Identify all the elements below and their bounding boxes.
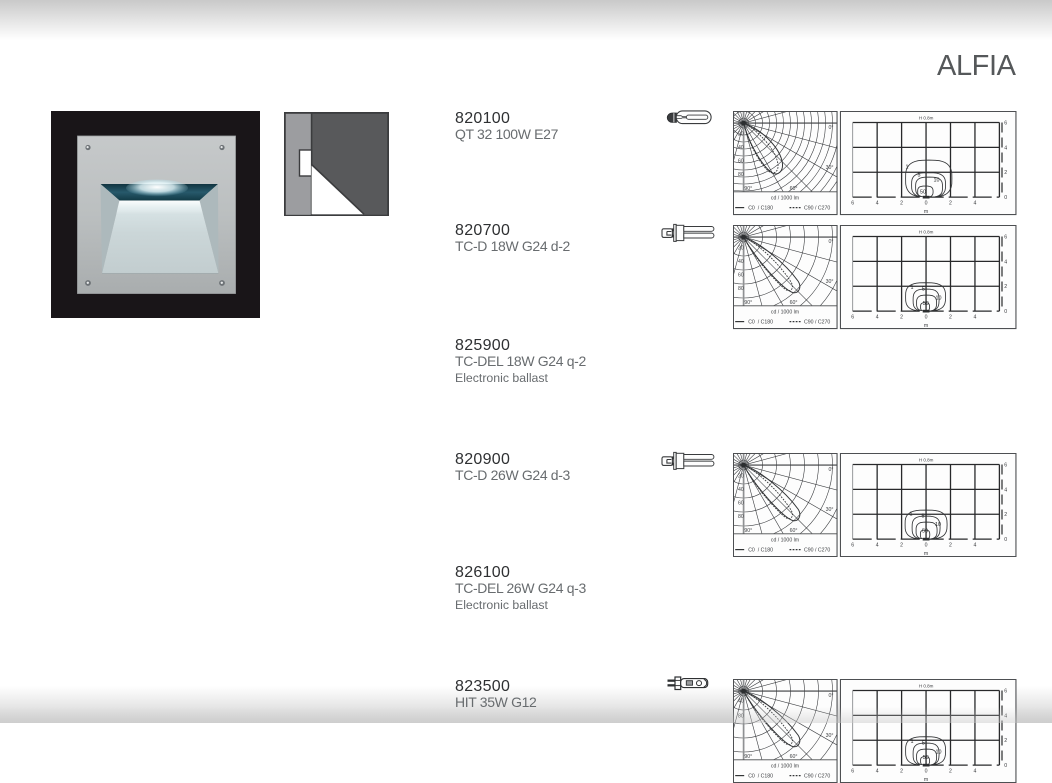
svg-text:2: 2 [900,768,903,774]
svg-text:H 0.8m: H 0.8m [918,457,933,462]
svg-text:0°: 0° [828,466,833,472]
svg-text:C90 / C270: C90 / C270 [804,320,830,326]
svg-text:0: 0 [924,315,927,321]
svg-text:m: m [923,209,927,215]
svg-text:4: 4 [1004,146,1007,152]
svg-text:C0 / C180: C0 / C180 [748,206,773,212]
svg-text:1: 1 [909,511,912,517]
svg-text:80: 80 [738,514,744,520]
svg-text:50: 50 [922,755,928,761]
svg-text:C90 / C270: C90 / C270 [804,547,830,553]
svg-text:1: 1 [910,739,913,745]
svg-text:0: 0 [924,201,927,207]
svg-text:4: 4 [973,315,976,321]
svg-text:4: 4 [875,542,878,548]
svg-text:2: 2 [1004,512,1007,518]
svg-text:C0 / C180: C0 / C180 [748,320,773,326]
svg-text:4: 4 [973,201,976,207]
svg-text:1: 1 [905,165,908,171]
svg-text:50: 50 [922,528,928,534]
svg-text:H 0.8m: H 0.8m [918,116,933,121]
svg-text:4: 4 [875,315,878,321]
svg-text:0°: 0° [828,125,833,131]
svg-text:6: 6 [851,315,854,321]
svg-text:90°: 90° [744,753,752,759]
svg-text:2: 2 [900,201,903,207]
svg-text:20: 20 [738,246,744,252]
svg-text:50: 50 [920,190,926,196]
svg-text:1: 1 [910,285,913,291]
svg-text:6: 6 [1004,462,1007,468]
svg-text:0: 0 [1004,537,1007,543]
svg-text:m: m [923,550,927,556]
svg-text:cd / 1000 lm: cd / 1000 lm [770,763,798,769]
svg-text:4: 4 [973,768,976,774]
svg-text:60: 60 [738,273,744,279]
svg-text:cd / 1000 lm: cd / 1000 lm [770,310,798,316]
svg-text:4: 4 [1004,487,1007,493]
svg-text:6: 6 [851,768,854,774]
svg-text:30°: 30° [825,507,833,513]
svg-text:6: 6 [1004,121,1007,127]
svg-text:m: m [923,776,927,782]
svg-text:60°: 60° [789,186,797,192]
svg-text:2: 2 [900,315,903,321]
svg-text:60: 60 [738,500,744,506]
svg-text:cd / 1000 lm: cd / 1000 lm [770,537,798,543]
svg-text:0: 0 [1004,195,1007,201]
svg-text:2: 2 [1004,284,1007,290]
svg-text:m: m [923,323,927,329]
svg-text:80: 80 [738,172,744,178]
svg-text:2: 2 [949,315,952,321]
svg-text:0: 0 [924,768,927,774]
svg-text:10: 10 [935,522,941,528]
svg-text:90°: 90° [744,300,752,306]
svg-text:2: 2 [1004,170,1007,176]
svg-text:40: 40 [738,698,744,704]
svg-text:C90 / C270: C90 / C270 [804,206,830,212]
svg-text:4: 4 [973,542,976,548]
svg-text:2: 2 [900,542,903,548]
svg-text:6: 6 [1004,688,1007,694]
svg-text:2: 2 [949,542,952,548]
svg-text:5: 5 [921,286,924,292]
svg-text:10: 10 [935,295,941,301]
svg-text:2: 2 [949,768,952,774]
svg-text:4: 4 [875,768,878,774]
svg-text:2: 2 [949,201,952,207]
svg-text:50: 50 [922,301,928,307]
svg-text:40: 40 [738,487,744,493]
svg-text:H 0.8m: H 0.8m [918,683,933,688]
svg-text:C90 / C270: C90 / C270 [804,773,830,779]
svg-text:10: 10 [933,178,939,184]
svg-text:30°: 30° [825,279,833,285]
svg-text:0: 0 [1004,309,1007,315]
svg-text:0°: 0° [828,692,833,698]
svg-text:40: 40 [738,259,744,265]
svg-text:6: 6 [1004,234,1007,240]
svg-text:cd / 1000 lm: cd / 1000 lm [770,196,798,202]
svg-text:2: 2 [1004,738,1007,744]
svg-text:60°: 60° [789,300,797,306]
svg-text:30°: 30° [825,733,833,739]
svg-text:0°: 0° [828,239,833,245]
svg-text:10: 10 [935,749,941,755]
svg-text:90°: 90° [744,186,752,192]
svg-text:20: 20 [738,132,744,138]
svg-text:0: 0 [924,542,927,548]
svg-text:5: 5 [921,740,924,746]
svg-text:C0 / C180: C0 / C180 [748,773,773,779]
svg-text:60°: 60° [789,753,797,759]
svg-text:60°: 60° [789,527,797,533]
svg-text:4: 4 [1004,259,1007,265]
svg-text:30°: 30° [825,165,833,171]
svg-text:40: 40 [738,145,744,151]
svg-text:80: 80 [738,286,744,292]
svg-text:5: 5 [921,513,924,519]
svg-text:5: 5 [917,173,920,179]
svg-text:6: 6 [851,542,854,548]
svg-text:60: 60 [738,159,744,165]
svg-text:90°: 90° [744,527,752,533]
svg-text:H 0.8m: H 0.8m [918,229,933,234]
svg-text:C0 / C180: C0 / C180 [748,547,773,553]
svg-text:0: 0 [1004,763,1007,769]
svg-text:4: 4 [875,201,878,207]
svg-text:20: 20 [738,473,744,479]
svg-text:6: 6 [851,201,854,207]
